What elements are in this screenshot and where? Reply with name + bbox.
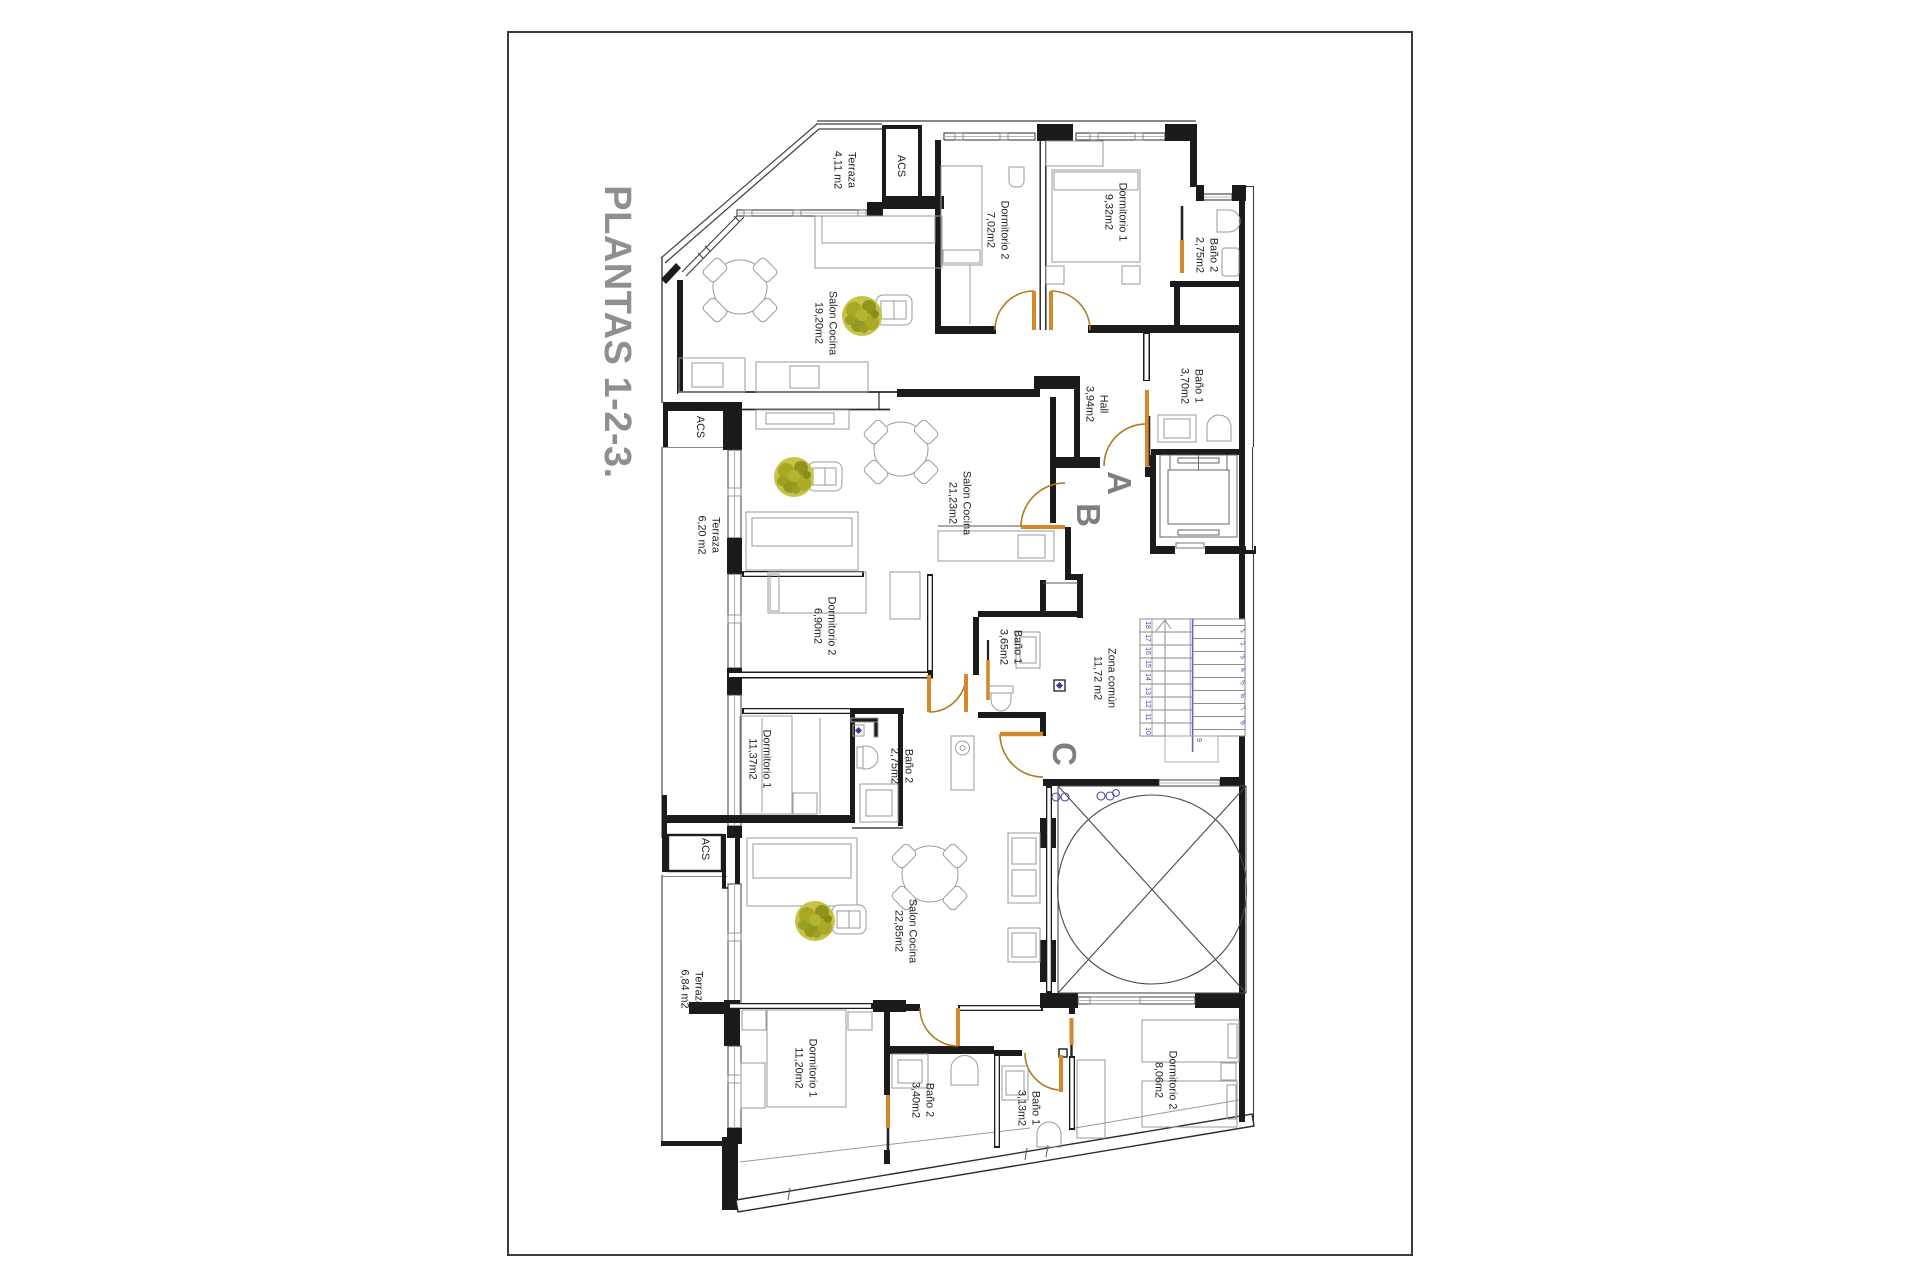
svg-text:22,85m2: 22,85m2 <box>893 910 905 952</box>
svg-text:11,72 m2: 11,72 m2 <box>1092 656 1104 700</box>
svg-text:Baño 2: Baño 2 <box>1208 238 1220 272</box>
svg-text:Dormitorio 1: Dormitorio 1 <box>1117 183 1129 242</box>
svg-text:6,84 m2: 6,84 m2 <box>679 969 691 1008</box>
svg-text:4,11 m2: 4,11 m2 <box>832 151 844 189</box>
svg-text:15: 15 <box>1144 660 1151 668</box>
svg-text:3,40m2: 3,40m2 <box>910 1082 922 1118</box>
svg-text:Salon Cocina: Salon Cocina <box>827 291 839 355</box>
svg-text:17: 17 <box>1144 634 1151 642</box>
svg-text:6,20 m2: 6,20 m2 <box>696 515 708 554</box>
svg-text:11,20m2: 11,20m2 <box>793 1047 805 1088</box>
svg-text:ACS: ACS <box>699 838 711 860</box>
svg-text:3,65m2: 3,65m2 <box>998 629 1010 665</box>
svg-text:Salon Cocina: Salon Cocina <box>907 899 919 963</box>
svg-text:Baño 1: Baño 1 <box>1193 369 1205 403</box>
svg-text:3,70m2: 3,70m2 <box>1179 368 1191 404</box>
svg-text:Dormitorio 2: Dormitorio 2 <box>999 201 1011 260</box>
svg-text:Zona común: Zona común <box>1106 648 1118 708</box>
svg-text:9: 9 <box>1195 738 1202 742</box>
svg-text:12: 12 <box>1144 700 1151 708</box>
svg-text:Baño 1: Baño 1 <box>1012 630 1024 664</box>
svg-text:Dormitorio 2: Dormitorio 2 <box>1167 1051 1179 1110</box>
svg-text:Hall: Hall <box>1098 395 1110 414</box>
svg-text:PLANTAS 1-2-3.: PLANTAS 1-2-3. <box>596 185 638 478</box>
svg-text:ACS: ACS <box>694 416 706 438</box>
svg-text:18: 18 <box>1144 621 1151 629</box>
svg-text:11: 11 <box>1144 713 1151 720</box>
svg-text:Terraza: Terraza <box>710 517 722 553</box>
svg-text:C: C <box>1046 742 1083 766</box>
svg-text:B: B <box>1070 503 1107 527</box>
svg-text:Terraza: Terraza <box>846 152 858 188</box>
svg-text:3,13m2: 3,13m2 <box>1016 1090 1028 1126</box>
svg-text:Baño 2: Baño 2 <box>924 1083 936 1117</box>
svg-text:3,94m2: 3,94m2 <box>1084 386 1096 422</box>
svg-text:A: A <box>1101 471 1138 495</box>
svg-text:Baño 2: Baño 2 <box>903 749 915 783</box>
svg-text:9,32m2: 9,32m2 <box>1103 194 1115 230</box>
svg-text:19,20m2: 19,20m2 <box>813 302 825 344</box>
svg-text:10: 10 <box>1144 727 1151 735</box>
svg-text:11,37m2: 11,37m2 <box>747 738 759 779</box>
svg-text:16: 16 <box>1144 647 1151 655</box>
svg-text:Dormitorio 1: Dormitorio 1 <box>761 730 773 789</box>
svg-text:14: 14 <box>1144 673 1151 681</box>
svg-text:21,23m2: 21,23m2 <box>947 482 959 524</box>
svg-text:13: 13 <box>1144 687 1151 695</box>
svg-text:Dormitorio 1: Dormitorio 1 <box>807 1039 819 1098</box>
svg-text:ACS: ACS <box>895 155 907 177</box>
svg-text:Dormitorio 2: Dormitorio 2 <box>826 597 838 656</box>
svg-text:7,02m2: 7,02m2 <box>985 212 997 248</box>
svg-text:Salon Cocina: Salon Cocina <box>961 471 973 535</box>
svg-text:Terraza: Terraza <box>693 971 705 1007</box>
svg-text:2,75m2: 2,75m2 <box>1194 237 1206 273</box>
svg-text:2,75m2: 2,75m2 <box>889 748 901 784</box>
svg-text:8,06m2: 8,06m2 <box>1153 1062 1165 1098</box>
svg-text:Baño 1: Baño 1 <box>1030 1091 1042 1125</box>
svg-text:6,90m2: 6,90m2 <box>812 608 824 644</box>
